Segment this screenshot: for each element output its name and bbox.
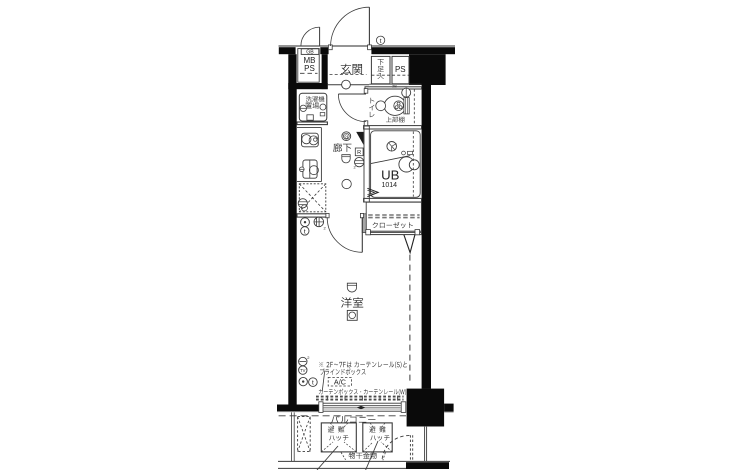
svg-text:t: t	[312, 380, 314, 387]
svg-text:2B: 2B	[392, 84, 397, 88]
svg-text:PS: PS	[304, 64, 315, 73]
svg-text:G: G	[344, 134, 348, 140]
svg-text:A/C: A/C	[334, 378, 346, 387]
svg-text:1014: 1014	[382, 182, 398, 189]
svg-text:TV: TV	[300, 368, 306, 373]
svg-text:t: t	[380, 38, 382, 45]
svg-text:t: t	[304, 228, 306, 235]
svg-text:GB: GB	[306, 50, 314, 56]
svg-text:UB: UB	[381, 168, 400, 183]
svg-text:R: R	[357, 150, 361, 156]
svg-text:PS: PS	[395, 65, 406, 74]
